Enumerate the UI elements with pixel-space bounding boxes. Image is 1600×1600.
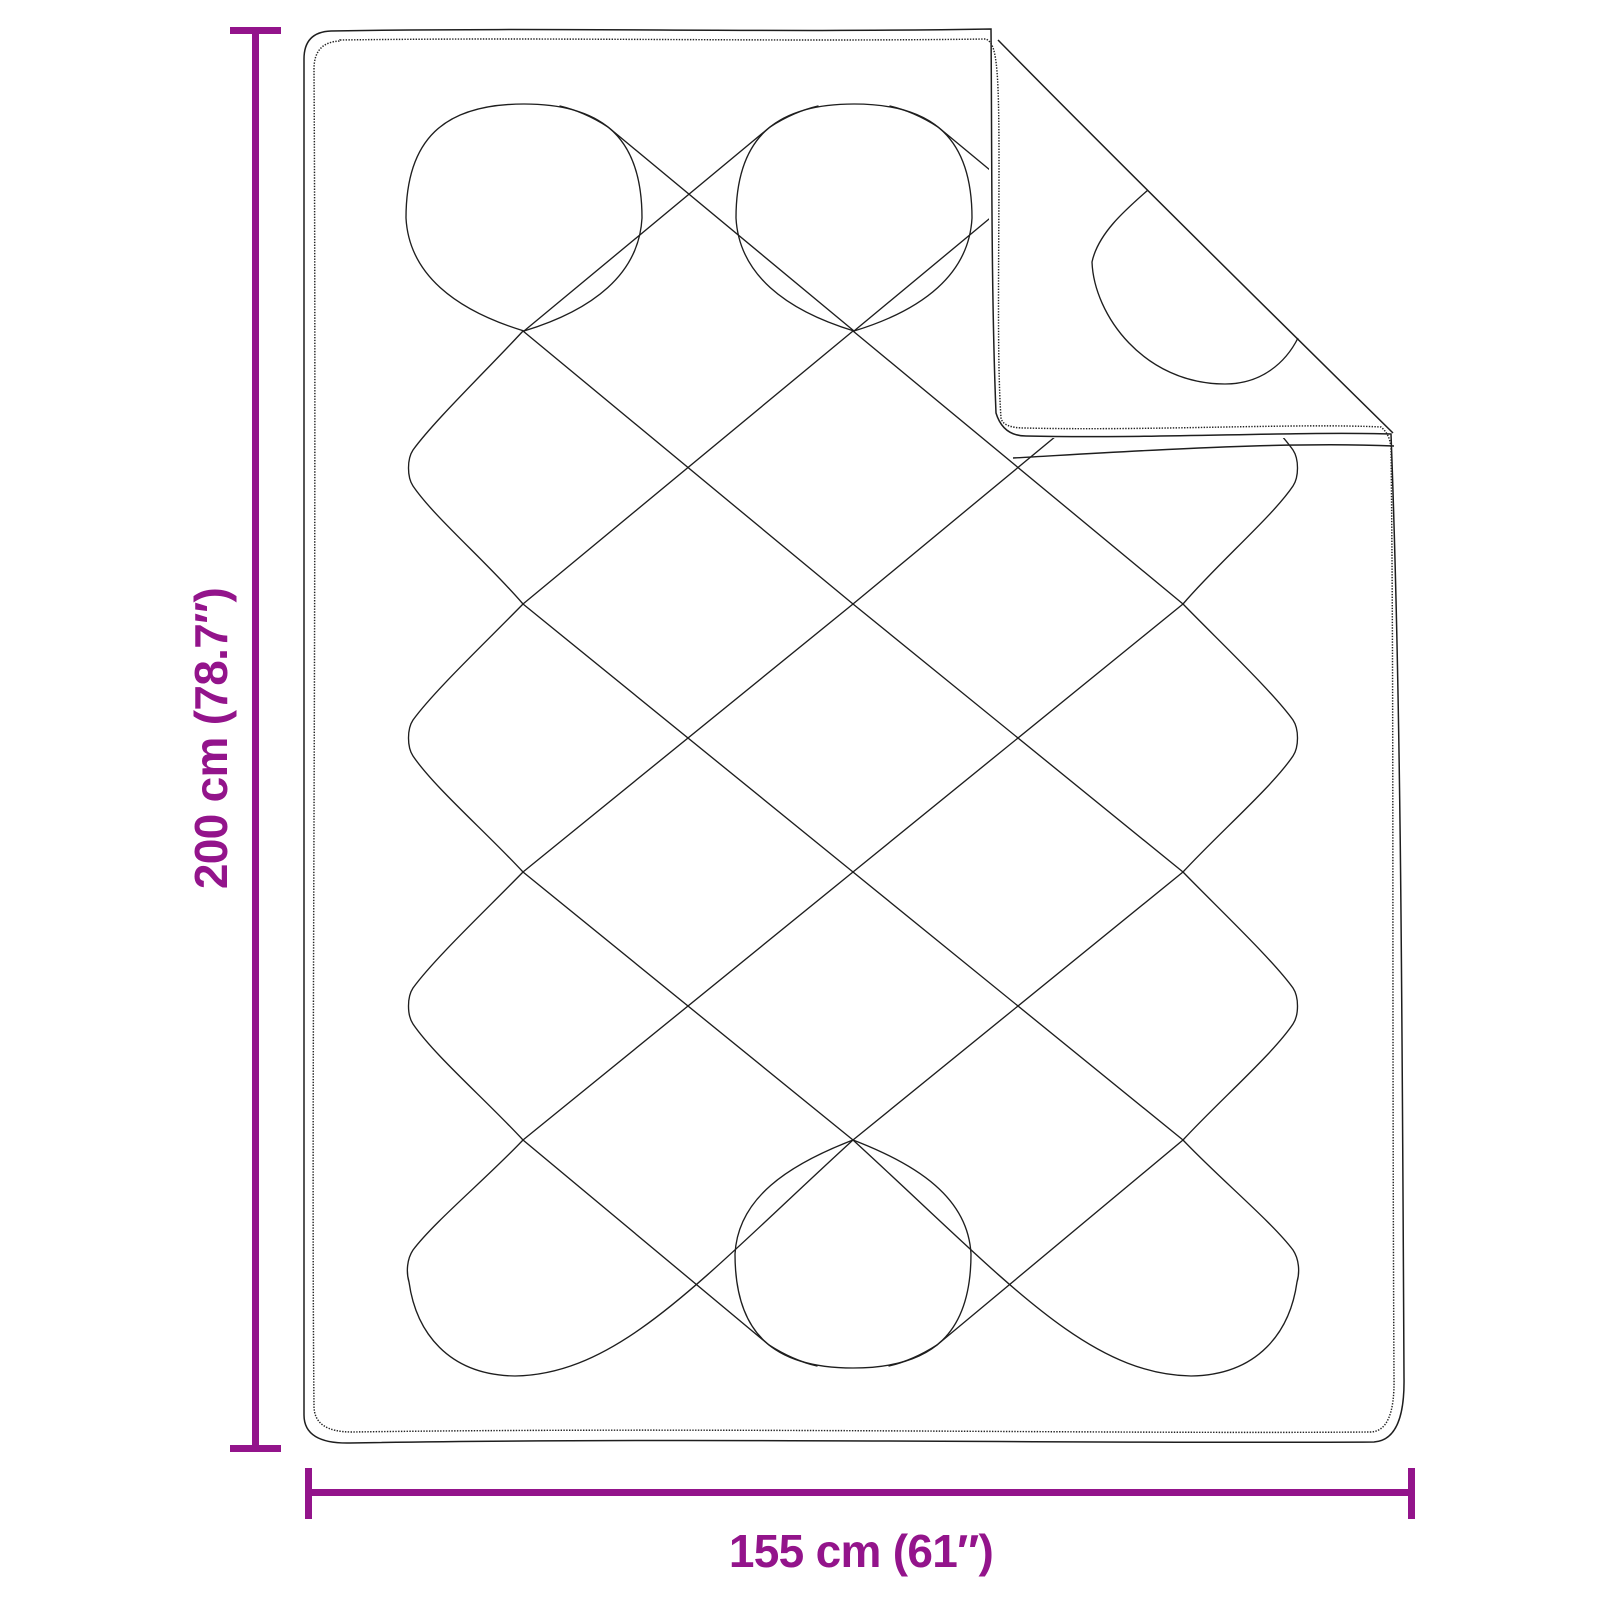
svg-text:155 cm (61″): 155 cm (61″) [729, 1525, 993, 1577]
svg-text:200 cm (78.7″): 200 cm (78.7″) [185, 588, 237, 889]
